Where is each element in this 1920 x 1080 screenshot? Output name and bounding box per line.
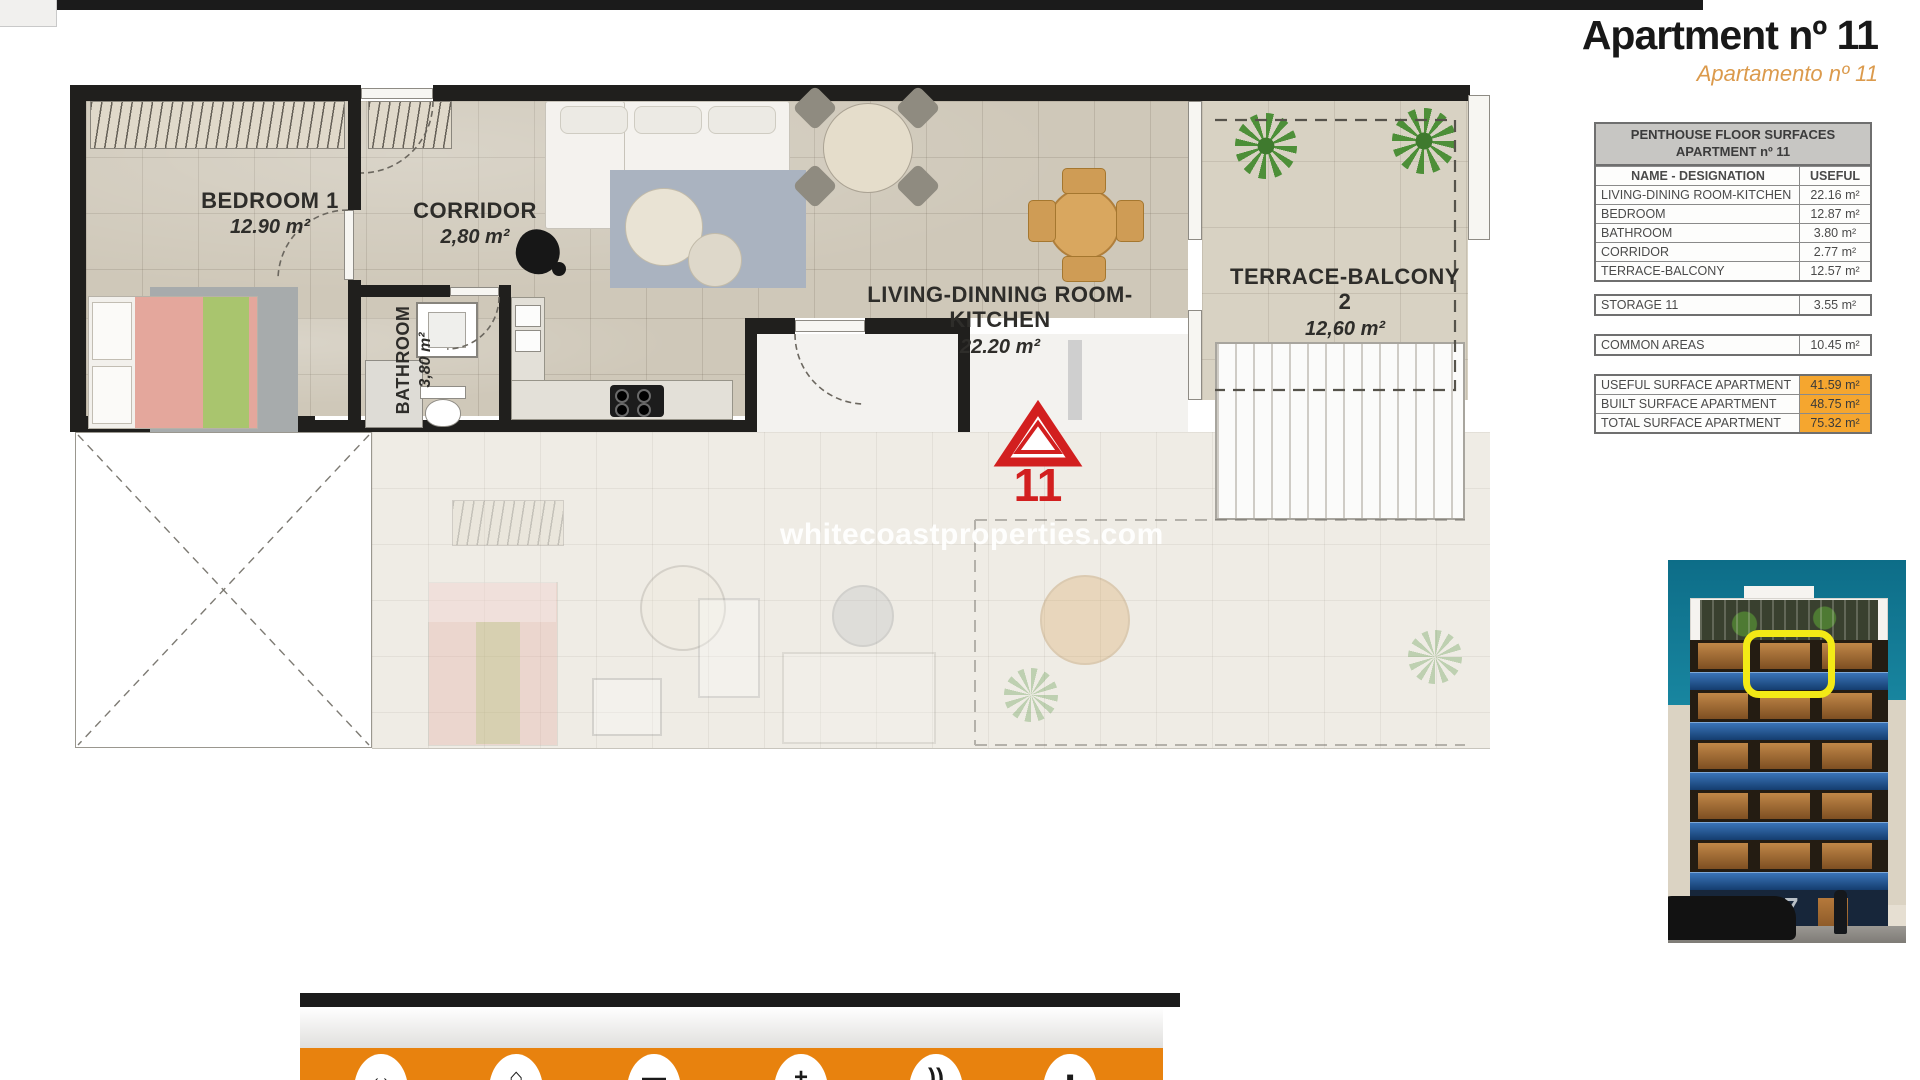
roof-area xyxy=(75,432,372,748)
floorplan-sheet: Apartment nº 11 Apartamento nº 11 xyxy=(0,0,1920,1080)
door-leaf xyxy=(450,287,499,296)
room-name: LIVING-DINNING ROOM-KITCHEN xyxy=(830,282,1170,333)
side-table xyxy=(688,233,742,287)
row-value-total: 48.75 m² xyxy=(1800,395,1870,413)
unit-number-marker: 11 xyxy=(998,458,1078,512)
icon-glyph: ▪ xyxy=(1066,1064,1075,1080)
icon-glyph: )) xyxy=(928,1064,944,1080)
plant xyxy=(1392,108,1456,174)
living-label: LIVING-DINNING ROOM-KITCHEN 22.20 m² xyxy=(830,282,1170,359)
terrace-chair xyxy=(1028,200,1056,242)
terrace-label: TERRACE-BALCONY 2 12,60 m² xyxy=(1230,264,1460,341)
row-name: TERRACE-BALCONY xyxy=(1596,262,1800,280)
closet xyxy=(368,101,452,149)
row-name: COMMON AREAS xyxy=(1596,336,1800,354)
ghost-sofa xyxy=(782,652,936,744)
storage-table: STORAGE 11 3.55 m² xyxy=(1594,294,1872,316)
wall xyxy=(70,85,361,101)
stove-burner xyxy=(637,403,651,417)
top-bar xyxy=(0,0,1703,10)
table-title-line2: APARTMENT nº 11 xyxy=(1596,144,1870,161)
sofa-cushion xyxy=(708,106,776,134)
row-name: BUILT SURFACE APARTMENT xyxy=(1596,395,1800,413)
dining-table xyxy=(823,103,913,193)
sofa-cushion xyxy=(634,106,702,134)
table-row: BEDROOM 12.87 m² xyxy=(1596,204,1870,223)
table-row: CORRIDOR 2.77 m² xyxy=(1596,242,1870,261)
header: Apartment nº 11 Apartamento nº 11 xyxy=(1582,12,1878,87)
person-silhouette xyxy=(1834,890,1847,934)
row-value: 12.87 m² xyxy=(1800,205,1870,223)
terrace-chair xyxy=(1116,200,1144,242)
glass-wall xyxy=(1188,101,1202,240)
corridor-label: CORRIDOR 2,80 m² xyxy=(390,198,560,249)
ghost-bathroom xyxy=(698,598,760,698)
ghost-side-table xyxy=(832,585,894,647)
terrace-table xyxy=(1048,188,1120,260)
building-render: 17 xyxy=(1668,560,1906,943)
door-leaf xyxy=(361,88,433,99)
table-column-header: NAME - DESIGNATION USEFUL xyxy=(1596,166,1870,185)
footer-icon-bar xyxy=(300,1048,1163,1080)
icon-glyph: + xyxy=(794,1064,808,1080)
row-value: 12.57 m² xyxy=(1800,262,1870,280)
pillow xyxy=(92,302,132,360)
table-row: STORAGE 11 3.55 m² xyxy=(1596,296,1870,314)
col-name: NAME - DESIGNATION xyxy=(1596,167,1800,185)
totals-table: USEFUL SURFACE APARTMENT 41.59 m² BUILT … xyxy=(1594,374,1872,434)
room-area: 3,80 m² xyxy=(417,300,435,420)
armchair-footrest xyxy=(552,262,566,276)
ghost-closet xyxy=(452,500,564,546)
room-name: TERRACE-BALCONY 2 xyxy=(1230,264,1460,315)
row-name: BEDROOM xyxy=(1596,205,1800,223)
table-row: BATHROOM 3.80 m² xyxy=(1596,223,1870,242)
top-left-tab xyxy=(0,0,57,27)
terrace-outer-wall xyxy=(1468,95,1490,240)
ghost-plant xyxy=(1004,668,1058,722)
ghost-pillow xyxy=(428,582,556,622)
row-name: STORAGE 11 xyxy=(1596,296,1800,314)
surface-table-header: PENTHOUSE FLOOR SURFACES APARTMENT nº 11 xyxy=(1596,124,1870,166)
pillow xyxy=(92,366,132,424)
balcony xyxy=(1690,772,1888,791)
row-name: USEFUL SURFACE APARTMENT xyxy=(1596,376,1800,394)
balcony xyxy=(1690,722,1888,741)
table-row: TOTAL SURFACE APARTMENT 75.32 m² xyxy=(1596,413,1870,432)
ghost-terrace-table xyxy=(1040,575,1130,665)
unit-highlight-box xyxy=(1743,630,1835,698)
wall xyxy=(361,285,450,297)
bedroom-label: BEDROOM 1 12.90 m² xyxy=(160,188,380,239)
room-name: BATHROOM xyxy=(393,300,414,420)
room-area: 22.20 m² xyxy=(830,336,1170,359)
room-name: BEDROOM 1 xyxy=(160,188,380,213)
icon-glyph: ▬ xyxy=(642,1064,666,1080)
table-row: USEFUL SURFACE APARTMENT 41.59 m² xyxy=(1596,376,1870,394)
row-name: LIVING-DINING ROOM-KITCHEN xyxy=(1596,186,1800,204)
row-name: CORRIDOR xyxy=(1596,243,1800,261)
stove-burner xyxy=(615,403,629,417)
ghost-plant xyxy=(1408,630,1462,684)
room-name: CORRIDOR xyxy=(390,198,560,223)
terrace-chair xyxy=(1062,168,1106,194)
stove-burner xyxy=(615,389,629,403)
terrace-chair xyxy=(1062,256,1106,282)
row-value-total: 75.32 m² xyxy=(1800,414,1870,432)
table-row: TERRACE-BALCONY 12.57 m² xyxy=(1596,261,1870,280)
neighbor-building xyxy=(1668,705,1692,915)
table-title-line1: PENTHOUSE FLOOR SURFACES xyxy=(1596,127,1870,144)
table-row: COMMON AREAS 10.45 m² xyxy=(1596,336,1870,354)
wall xyxy=(348,280,361,432)
glass-wall xyxy=(1188,310,1202,400)
ghost-bed-throw xyxy=(476,622,520,744)
stove-burner xyxy=(637,389,651,403)
room-area: 12.90 m² xyxy=(160,216,380,239)
icon-glyph: ⌂ xyxy=(509,1064,524,1080)
page-title: Apartment nº 11 xyxy=(1582,12,1878,59)
sofa-cushion xyxy=(560,106,628,134)
ghost-stove xyxy=(592,678,662,736)
row-value-total: 41.59 m² xyxy=(1800,376,1870,394)
wall xyxy=(745,318,757,432)
row-value: 2.77 m² xyxy=(1800,243,1870,261)
bed-throw xyxy=(203,297,249,428)
surface-table: PENTHOUSE FLOOR SURFACES APARTMENT nº 11… xyxy=(1594,122,1872,282)
bathroom-label: BATHROOM 3,80 m² xyxy=(393,300,533,420)
row-value: 10.45 m² xyxy=(1800,336,1870,354)
col-useful: USEFUL xyxy=(1800,167,1870,185)
row-value: 3.80 m² xyxy=(1800,224,1870,242)
balcony xyxy=(1690,872,1888,891)
balcony xyxy=(1690,822,1888,841)
table-row: BUILT SURFACE APARTMENT 48.75 m² xyxy=(1596,394,1870,413)
common-areas-table: COMMON AREAS 10.45 m² xyxy=(1594,334,1872,356)
row-value: 22.16 m² xyxy=(1800,186,1870,204)
footer-gradient-band xyxy=(300,1007,1163,1048)
table-row: LIVING-DINING ROOM-KITCHEN 22.16 m² xyxy=(1596,185,1870,204)
footer-divider-bar xyxy=(300,993,1180,1007)
watermark: whitecoastproperties.com xyxy=(780,518,1140,552)
page-subtitle: Apartamento nº 11 xyxy=(1582,61,1878,87)
icon-glyph: ↔ xyxy=(369,1064,393,1080)
wall xyxy=(433,85,1470,101)
room-area: 2,80 m² xyxy=(390,226,560,249)
wall xyxy=(70,85,86,432)
stairwell xyxy=(1215,342,1465,520)
closet xyxy=(90,101,345,149)
plant xyxy=(1235,113,1297,179)
row-name: TOTAL SURFACE APARTMENT xyxy=(1596,414,1800,432)
car-silhouette xyxy=(1668,896,1796,940)
room-area: 12,60 m² xyxy=(1230,318,1460,341)
row-name: BATHROOM xyxy=(1596,224,1800,242)
row-value: 3.55 m² xyxy=(1800,296,1870,314)
